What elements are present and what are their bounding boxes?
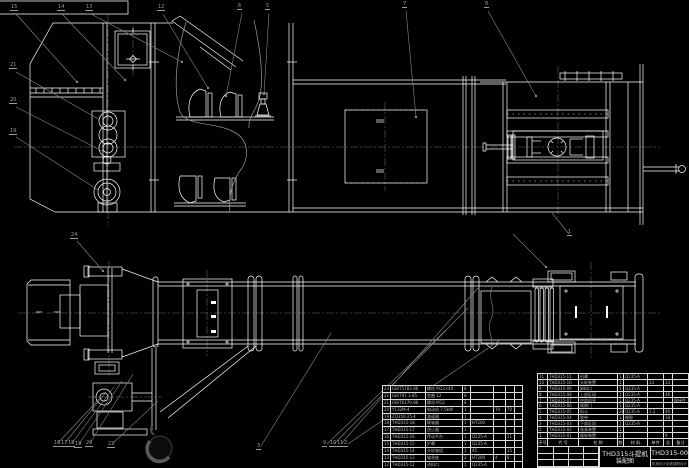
bom-row: 16THD315-16传动平台1Q235-A21 bbox=[383, 433, 524, 440]
part-callout: 21 bbox=[9, 63, 17, 69]
bom-cell: 1 bbox=[463, 440, 471, 447]
bom-cell bbox=[494, 426, 506, 433]
bom-cell: 19 bbox=[383, 413, 391, 420]
bom-cell: 8 bbox=[463, 385, 471, 392]
watermark-crescent bbox=[147, 426, 172, 461]
bom-cell bbox=[515, 447, 523, 454]
bom-cell bbox=[506, 440, 515, 447]
bom-row: 15THD315-15护罩1Q235-A bbox=[383, 440, 524, 447]
bom-cell bbox=[471, 385, 494, 392]
bom-cell bbox=[471, 413, 494, 420]
bom-cell: HT200 bbox=[471, 419, 494, 426]
title-block-note: 机械设计制造课程设计 bbox=[651, 460, 688, 467]
bom-cell bbox=[494, 440, 506, 447]
casing-plan bbox=[153, 276, 636, 351]
bom-cell: 护罩 bbox=[426, 440, 463, 447]
part-callout: 20 bbox=[85, 441, 93, 447]
bom-cell: THD315-15 bbox=[391, 440, 426, 447]
bom-cell: 13 bbox=[383, 454, 391, 461]
bom-cell bbox=[515, 392, 523, 399]
bom-cell bbox=[515, 454, 523, 461]
bom-table-right: 11THD315-11机罩1Q235-A10THD315-10头轮装置11313… bbox=[537, 373, 689, 446]
bom-cell bbox=[494, 399, 506, 406]
bom-cell bbox=[471, 392, 494, 399]
bom-cell bbox=[494, 433, 506, 440]
bom-cell bbox=[515, 399, 523, 406]
bom-cell: GB/T97.1-85 bbox=[391, 392, 426, 399]
bom-row: 18THD315-18联轴器1HT200 bbox=[383, 419, 524, 426]
bom-cell: 螺母 M12 bbox=[426, 399, 463, 406]
head-section bbox=[30, 23, 297, 212]
bom-cell bbox=[515, 385, 523, 392]
bom-cell: 14 bbox=[383, 447, 391, 454]
bom-cell: 1 bbox=[463, 419, 471, 426]
bom-cell: THD315-13 bbox=[391, 454, 426, 461]
signature-cell bbox=[554, 447, 569, 454]
bom-cell: THD315-17 bbox=[391, 426, 426, 433]
bom-cell: 螺栓 M12×40 bbox=[426, 385, 463, 392]
product-name: THD315斗提机 bbox=[602, 450, 648, 458]
inspection-door-plan bbox=[183, 279, 232, 348]
bom-table-left: 23GB/T5782-86螺栓 M12×40822GB/T97.1-85垫圈 1… bbox=[382, 385, 524, 468]
bom-cell bbox=[494, 461, 506, 468]
bom-cell bbox=[515, 419, 523, 426]
part-callout: 1 bbox=[567, 230, 572, 236]
bom-cell bbox=[494, 392, 506, 399]
bom-cell bbox=[515, 426, 523, 433]
bom-header-cell: 材 料 bbox=[624, 438, 648, 446]
title-block-name: THD315斗提机 装配图 bbox=[599, 447, 651, 467]
bom-row: 14THD315-14头轮轴组14515 bbox=[383, 447, 524, 454]
signature-cell bbox=[554, 460, 569, 467]
bom-header-cell: 单件 bbox=[648, 438, 664, 446]
signature-cell bbox=[569, 460, 584, 467]
bom-cell: 20 bbox=[383, 406, 391, 413]
bom-cell bbox=[506, 392, 515, 399]
signature-cell bbox=[584, 447, 599, 454]
bom-cell: 21 bbox=[383, 399, 391, 406]
bom-cell: 1 bbox=[463, 461, 471, 468]
signature-cell bbox=[554, 454, 569, 461]
signature-cell bbox=[584, 454, 599, 461]
bom-cell: 15 bbox=[506, 447, 515, 454]
signature-cell bbox=[538, 447, 554, 454]
inspection-door-elevation bbox=[115, 28, 150, 70]
leader-lines bbox=[16, 11, 569, 446]
bom-row: 12THD315-12进料口1Q235-A bbox=[383, 461, 524, 468]
bom-cell: 23 bbox=[383, 385, 391, 392]
signature-cell bbox=[569, 447, 584, 454]
tail-section bbox=[480, 64, 686, 225]
bom-cell: 进料口 bbox=[426, 461, 463, 468]
part-callout: 19 bbox=[74, 442, 82, 448]
bom-row: 19ZQ350-25-Ⅱ减速器1 bbox=[383, 413, 524, 420]
title-block: THD315斗提机 装配图 THD315-00 机械设计制造课程设计 bbox=[537, 446, 689, 468]
bom-row: 20Y132M-4电动机 7.5kW17070 bbox=[383, 406, 524, 413]
bom-cell bbox=[506, 413, 515, 420]
bom-header-cell: 代 号 bbox=[548, 438, 579, 446]
bom-cell: GB/T5782-86 bbox=[391, 385, 426, 392]
signature-cell bbox=[569, 454, 584, 461]
bom-cell: THD315-16 bbox=[391, 433, 426, 440]
cad-drawing-sheet: 23GB/T5782-86螺栓 M12×40822GB/T97.1-85垫圈 1… bbox=[0, 0, 689, 468]
part-callout: 12 bbox=[157, 5, 165, 11]
bom-cell bbox=[494, 447, 506, 454]
bom-cell: 17 bbox=[383, 426, 391, 433]
bom-cell bbox=[494, 385, 506, 392]
bom-cell: THD315-18 bbox=[391, 419, 426, 426]
signature-cell bbox=[584, 460, 599, 467]
bom-cell bbox=[506, 385, 515, 392]
bom-cell: 1 bbox=[463, 406, 471, 413]
bom-header-cell: 序号 bbox=[538, 438, 548, 446]
part-callout: 22 bbox=[107, 442, 115, 448]
bom-cell: 15 bbox=[383, 440, 391, 447]
part-callout: 19 bbox=[9, 129, 17, 135]
bom-header-cell: 总计 bbox=[664, 438, 673, 446]
bom-row: 22GB/T97.1-85垫圈 128 bbox=[383, 392, 524, 399]
bom-cell bbox=[506, 426, 515, 433]
bom-row: 13THD315-13轴承座2HT20048 bbox=[383, 454, 524, 461]
bom-cell: 头轮轴组 bbox=[426, 447, 463, 454]
bom-cell: 16 bbox=[383, 433, 391, 440]
elevation-view bbox=[14, 15, 686, 226]
bom-row: 21GB/T6170-86螺母 M128 bbox=[383, 399, 524, 406]
drawing-type: 装配图 bbox=[616, 458, 634, 465]
bom-cell bbox=[515, 433, 523, 440]
bom-cell: 电动机 7.5kW bbox=[426, 406, 463, 413]
bom-cell bbox=[515, 440, 523, 447]
bom-row: 23GB/T5782-86螺栓 M12×408 bbox=[383, 385, 524, 392]
signature-cell bbox=[538, 454, 554, 461]
drawing-number: THD315-00 bbox=[651, 447, 688, 460]
signature-cell bbox=[538, 460, 554, 467]
bom-cell: Q235-A bbox=[471, 440, 494, 447]
bom-cell: HT200 bbox=[471, 454, 494, 461]
title-block-number: THD315-00 机械设计制造课程设计 bbox=[651, 447, 688, 467]
tension-rod bbox=[643, 164, 686, 174]
signature-grid bbox=[538, 447, 599, 467]
bom-cell bbox=[515, 461, 523, 468]
part-callout: 8 bbox=[484, 2, 489, 8]
tail-plan bbox=[548, 271, 643, 353]
bom-cell: 8 bbox=[506, 454, 515, 461]
bom-cell: 70 bbox=[506, 406, 515, 413]
part-callout: 2 bbox=[343, 441, 348, 447]
bom-cell: 18 bbox=[383, 419, 391, 426]
bom-cell: 1 bbox=[463, 413, 471, 420]
bom-header-row: 序号代 号名 称数量材 料单件总计备注 bbox=[538, 438, 689, 446]
bom-cell: 70 bbox=[494, 406, 506, 413]
takeup-carriage bbox=[513, 131, 603, 160]
bom-cell bbox=[515, 406, 523, 413]
bom-header-cell: 名 称 bbox=[579, 438, 618, 446]
part-callout: 6 bbox=[237, 4, 242, 10]
bom-cell: Q235-A bbox=[471, 461, 494, 468]
bom-cell: 1 bbox=[463, 433, 471, 440]
bom-cell: 21 bbox=[506, 433, 515, 440]
bom-cell bbox=[471, 406, 494, 413]
bom-cell bbox=[515, 413, 523, 420]
bom-cell: 垫圈 12 bbox=[426, 392, 463, 399]
bom-cell: 1 bbox=[463, 426, 471, 433]
bom-cell: 逆止器 bbox=[426, 426, 463, 433]
bom-cell bbox=[471, 426, 494, 433]
bom-cell: 2 bbox=[463, 454, 471, 461]
bom-cell bbox=[506, 461, 515, 468]
bom-cell: 45 bbox=[471, 447, 494, 454]
middle-section bbox=[149, 20, 297, 212]
bom-cell bbox=[494, 413, 506, 420]
part-callout: 5 bbox=[265, 4, 270, 10]
part-callout: 20 bbox=[9, 98, 17, 104]
bom-cell: Y132M-4 bbox=[391, 406, 426, 413]
part-callout: 24 bbox=[70, 233, 78, 239]
bom-cell: ZQ350-25-Ⅱ bbox=[391, 413, 426, 420]
drive-unit-plan bbox=[93, 346, 256, 435]
bom-cell: 减速器 bbox=[426, 413, 463, 420]
bom-cell bbox=[471, 399, 494, 406]
bom-cell: GB/T6170-86 bbox=[391, 399, 426, 406]
takeup-rails bbox=[507, 110, 608, 185]
part-callout: 13 bbox=[85, 5, 93, 11]
bom-cell: 轴承座 bbox=[426, 454, 463, 461]
part-callout: 7 bbox=[402, 2, 407, 8]
middle-casing bbox=[293, 76, 643, 215]
bom-cell: 12 bbox=[383, 461, 391, 468]
bom-cell: 8 bbox=[463, 392, 471, 399]
bom-row: 17THD315-17逆止器1 bbox=[383, 426, 524, 433]
bom-cell: 传动平台 bbox=[426, 433, 463, 440]
part-callout: 3 bbox=[256, 444, 261, 450]
part-callout: 14 bbox=[57, 5, 65, 11]
bom-cell: 联轴器 bbox=[426, 419, 463, 426]
motor-plan bbox=[27, 280, 108, 345]
bom-cell bbox=[494, 419, 506, 426]
bom-cell: 1 bbox=[463, 447, 471, 454]
part-callout: 15 bbox=[10, 5, 18, 11]
bom-cell bbox=[506, 399, 515, 406]
bom-cell: THD315-12 bbox=[391, 461, 426, 468]
bom-cell: THD315-14 bbox=[391, 447, 426, 454]
bom-cell bbox=[506, 419, 515, 426]
bom-header-cell: 备注 bbox=[673, 438, 689, 446]
bom-cell: 4 bbox=[494, 454, 506, 461]
bom-cell: 22 bbox=[383, 392, 391, 399]
bom-cell: Q235-A bbox=[471, 433, 494, 440]
part-callout: 9 bbox=[322, 441, 327, 447]
bom-cell: 8 bbox=[463, 399, 471, 406]
